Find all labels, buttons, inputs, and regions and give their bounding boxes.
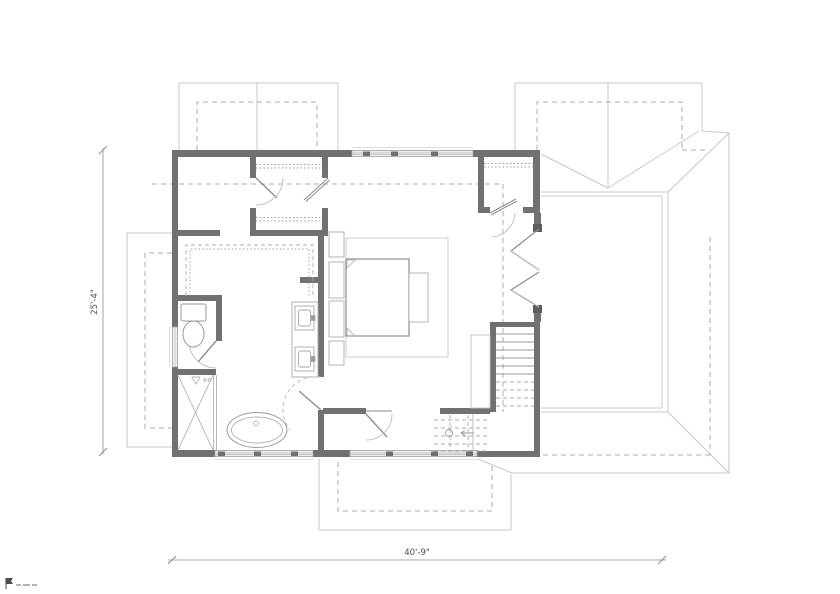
wall-shower-top <box>172 369 216 375</box>
walkin-closet-rod <box>186 245 313 296</box>
dimension-left: 25'-4" <box>90 146 107 456</box>
nightstand <box>329 341 344 365</box>
wall-west-lower <box>172 367 178 457</box>
dimension-bottom: 40'-9" <box>168 548 666 564</box>
dimension-left-label: 25'-4" <box>90 289 100 315</box>
headboard <box>329 301 344 337</box>
nightstands-headboard <box>329 232 344 365</box>
nightstand <box>329 232 344 257</box>
wall-south-stair <box>473 451 540 457</box>
shower-head <box>192 377 200 384</box>
toilet <box>181 304 206 347</box>
door-leaf <box>304 178 330 202</box>
stair-chase <box>471 335 490 408</box>
freestanding-tub <box>227 413 287 448</box>
faucet <box>311 316 315 321</box>
dormer-top-left <box>179 83 338 150</box>
watermark-logo <box>6 578 37 589</box>
stair-direction-arrow <box>461 431 474 436</box>
wall-stair-top <box>490 322 540 327</box>
window-band-bottom-1 <box>215 451 313 457</box>
dormer-left <box>127 233 172 447</box>
dormer-bottom <box>319 458 512 530</box>
stair-symbol-circle <box>446 430 453 437</box>
wall-east-room <box>533 157 540 213</box>
gable-top-right <box>515 83 702 188</box>
headboard <box>329 262 344 298</box>
wall-wc-right <box>216 301 222 341</box>
shower <box>178 375 217 450</box>
wall-top-left <box>172 150 352 157</box>
floor-plan-drawing: 25'-4" 40'-9" <box>0 0 840 594</box>
wall-stair-left <box>490 327 496 412</box>
bifold-doors <box>511 229 539 307</box>
faucet <box>311 357 315 362</box>
window-band-top <box>352 151 473 157</box>
roof-eave-lines <box>541 192 668 412</box>
wall-stair-right <box>534 327 540 451</box>
floor-plan-sheet: 25'-4" 40'-9" <box>0 0 840 594</box>
wall-south-1 <box>172 450 215 457</box>
door-swing-arc-dashed <box>283 377 321 430</box>
roof-right <box>512 131 729 473</box>
staircase <box>434 334 534 452</box>
bench <box>409 273 428 322</box>
wall-wc-top <box>172 295 222 301</box>
door-leaf <box>256 178 277 198</box>
bed <box>346 259 409 336</box>
door-leaf <box>299 391 321 410</box>
double-vanity <box>292 302 318 377</box>
walkin-closet-shelf <box>190 249 309 296</box>
dimension-bottom-label: 40'-9" <box>404 548 430 558</box>
door-leaf <box>366 414 387 437</box>
